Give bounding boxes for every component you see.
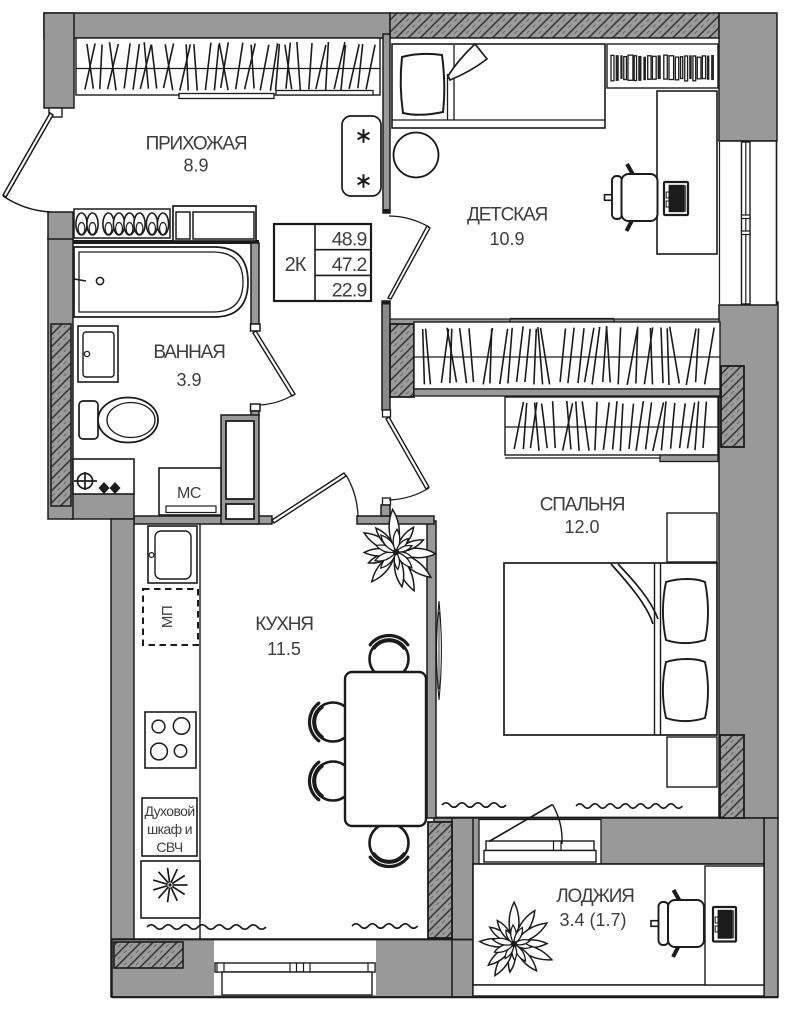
svg-text:ДЕТСКАЯ: ДЕТСКАЯ <box>467 205 547 226</box>
svg-text:2К: 2К <box>285 254 307 276</box>
svg-text:11.5: 11.5 <box>267 639 301 659</box>
svg-text:МП: МП <box>159 606 176 628</box>
svg-text:шкаф и: шкаф и <box>147 821 192 837</box>
svg-text:10.9: 10.9 <box>489 229 524 249</box>
svg-text:8.9: 8.9 <box>183 156 208 176</box>
svg-text:СВЧ: СВЧ <box>156 839 183 855</box>
svg-text:КУХНЯ: КУХНЯ <box>255 614 313 635</box>
svg-text:12.0: 12.0 <box>564 517 599 537</box>
svg-text:МС: МС <box>177 485 201 502</box>
svg-text:48.9: 48.9 <box>332 229 367 251</box>
svg-text:47.2: 47.2 <box>332 254 367 276</box>
svg-text:Духовой: Духовой <box>144 803 194 819</box>
svg-text:ЛОДЖИЯ: ЛОДЖИЯ <box>556 886 634 907</box>
svg-text:ПРИХОЖАЯ: ПРИХОЖАЯ <box>146 134 247 155</box>
svg-text:СПАЛЬНЯ: СПАЛЬНЯ <box>540 495 625 516</box>
svg-text:3.9: 3.9 <box>176 370 201 390</box>
svg-text:3.4 (1.7): 3.4 (1.7) <box>559 910 626 930</box>
svg-text:22.9: 22.9 <box>332 280 367 302</box>
svg-text:ВАННАЯ: ВАННАЯ <box>153 342 225 363</box>
